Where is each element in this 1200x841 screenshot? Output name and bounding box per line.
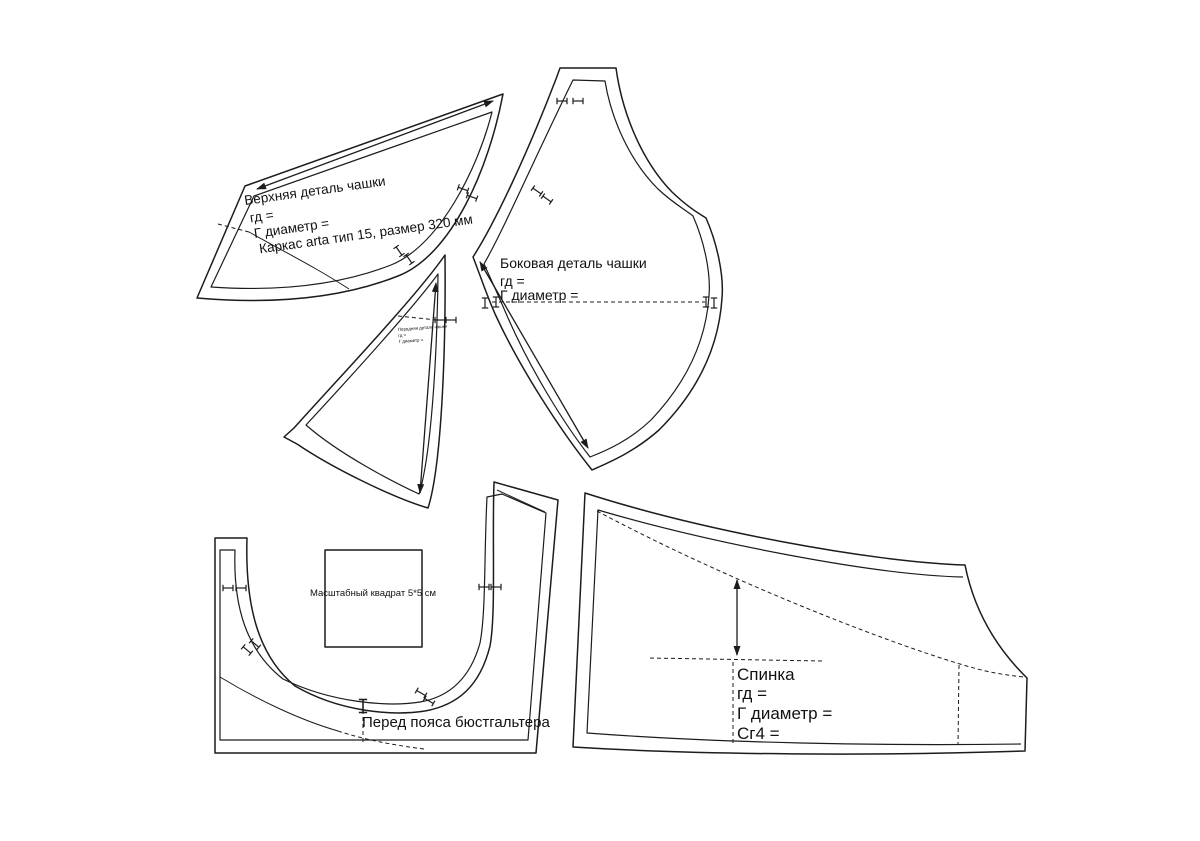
vertical-guide-right-dashed: [958, 665, 959, 745]
wire-guide-dashed: [218, 224, 249, 232]
notch-mark: [531, 186, 543, 197]
piece-upper-cup: Верхняя деталь чашки гд = Г диаметр = Ка…: [197, 94, 503, 300]
piece-side-cup: Боковая деталь чашки гд = Г диаметр =: [473, 68, 722, 470]
notch-mark: [236, 585, 246, 591]
piece-label: Спинка: [737, 665, 795, 684]
seam-line: [220, 494, 546, 740]
notch-mark: [223, 585, 233, 591]
notch-mark: [711, 298, 717, 308]
measurement-diameter: Г диаметр =: [500, 287, 578, 303]
back-labels: Спинка гд = Г диаметр = Сг4 =: [737, 665, 832, 743]
notch-mark: [394, 245, 405, 257]
notch-mark: [241, 644, 253, 655]
scale-square: Масштабный квадрат 5*5 см: [310, 550, 436, 647]
piece-front-cup: Передняя деталь чашки гд = Г диаметр =: [284, 255, 449, 508]
sewing-pattern-sheet: Верхняя деталь чашки гд = Г диаметр = Ка…: [0, 0, 1200, 841]
piece-front-band: Перед пояса бюстгальтера: [215, 482, 558, 753]
notch-mark: [491, 584, 501, 590]
measurement-gd: гд =: [398, 332, 407, 338]
cut-line: [284, 255, 445, 508]
side-cup-labels: Боковая деталь чашки гд = Г диаметр =: [500, 255, 647, 303]
strap-guide-line: [497, 490, 545, 512]
notch-mark: [541, 194, 553, 205]
measurement-diameter: Г диаметр =: [399, 337, 424, 344]
notch-mark: [446, 317, 456, 323]
upper-cup-labels: Верхняя деталь чашки гд = Г диаметр = Ка…: [243, 162, 473, 257]
pattern-canvas: Верхняя деталь чашки гд = Г диаметр = Ка…: [0, 0, 1200, 841]
notch-mark: [482, 298, 488, 308]
piece-label: Передняя деталь чашки: [398, 324, 448, 332]
front-cup-labels: Передняя деталь чашки гд = Г диаметр =: [398, 324, 449, 344]
piece-label: Перед пояса бюстгальтера: [362, 714, 550, 731]
measurement-diameter: Г диаметр =: [737, 704, 832, 723]
notch-mark: [457, 184, 469, 193]
cut-line: [215, 482, 558, 753]
piece-back: Спинка гд = Г диаметр = Сг4 =: [573, 493, 1027, 754]
fold-guide-line: [220, 677, 338, 731]
bust-line-dashed: [650, 658, 822, 661]
notch-mark: [573, 98, 583, 104]
measurement-sg4: Сг4 =: [737, 724, 780, 743]
scale-square-label: Масштабный квадрат 5*5 см: [310, 588, 436, 599]
piece-label: Боковая деталь чашки: [500, 255, 647, 271]
measurement-gd: гд =: [737, 684, 767, 703]
top-edge-guide-dashed: [597, 511, 1024, 677]
